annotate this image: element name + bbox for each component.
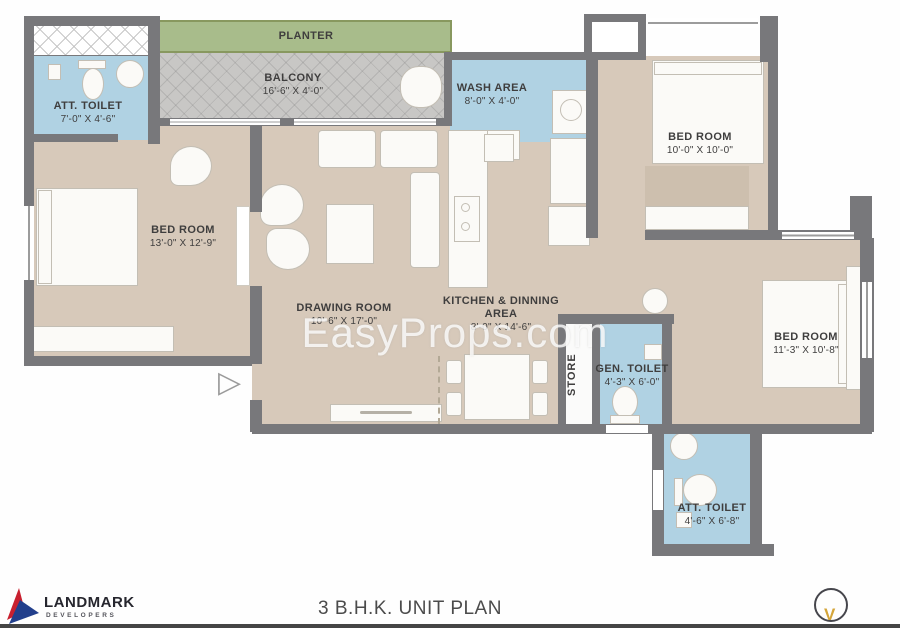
wall-bedroom-left-right-lower — [250, 286, 262, 364]
balcony-name: BALCONY — [222, 72, 364, 85]
dining-chair-2 — [446, 392, 462, 416]
att-toilet-2-name: ATT. TOILET — [650, 502, 774, 515]
tv-screen — [360, 411, 412, 414]
wall-left-outer — [24, 16, 34, 366]
window-balcony-2 — [294, 119, 436, 125]
att-toilet-1-name: ATT. TOILET — [26, 100, 150, 113]
label-wash-area: WASH AREA 8'-0" X 4'-0" — [430, 82, 554, 108]
wall-store-left — [558, 322, 566, 426]
logo-name-text: LANDMARK — [44, 595, 135, 611]
bedroom-right-name: BED ROOM — [724, 331, 888, 344]
kitchen-dining-name-2: AREA — [421, 308, 581, 321]
dining-chair-1 — [446, 360, 462, 384]
drawing-room-name: DRAWING ROOM — [262, 302, 426, 315]
chair-bedroom-left — [170, 146, 212, 186]
passage-washbasin — [642, 288, 668, 314]
wash-area-dim: 8'-0" X 4'-0" — [430, 95, 554, 108]
tub-chair-b — [266, 228, 310, 270]
floor-plan-canvas: ▷ PLANTER BALCONY 16'-6" X 4'-0" WASH AR… — [0, 0, 900, 628]
tub-chair-a — [260, 184, 304, 226]
window-bedroom-right-top — [782, 232, 854, 239]
wash-area-name: WASH AREA — [430, 82, 554, 95]
gen-toilet-dim: 4'-3" X 6'-0" — [584, 376, 680, 389]
drawing-room-dim: 10'-6" X 17'-0" — [262, 315, 426, 328]
label-bedroom-left: BED ROOM 13'-0" X 12'-9" — [101, 224, 265, 250]
bedroom-right-dim: 11'-3" X 10'-8" — [724, 344, 888, 357]
bedroom-top-right-name: BED ROOM — [618, 131, 782, 144]
sofa-seat-a — [318, 130, 376, 168]
label-planter: PLANTER — [160, 30, 452, 43]
wall-wash-top — [450, 52, 590, 60]
wall-tr-bedroom-bottom — [645, 230, 778, 240]
wall-bedroom-left-right-upper — [250, 120, 262, 212]
entry-arrow-icon: ▷ — [218, 368, 241, 398]
bench-bedroom-top-right — [645, 206, 749, 230]
kitchen-fridge — [548, 206, 590, 246]
dining-divider-dashed — [438, 356, 440, 424]
bottom-border-line — [0, 624, 900, 628]
att-toilet-2-dim: 4'-6" X 6'-8" — [650, 515, 774, 528]
compass-direction-glyph: V — [824, 605, 835, 625]
wc-bowl-att-toilet-1 — [82, 68, 104, 100]
wardrobe-bedroom-top-right — [645, 166, 749, 206]
logo-pinwheel-icon — [6, 587, 40, 628]
dining-chair-4 — [532, 392, 548, 416]
att-toilet-1-dim: 7'-0" X 4'-6" — [26, 113, 150, 126]
label-balcony: BALCONY 16'-6" X 4'-0" — [222, 72, 364, 98]
label-kitchen-dining: KITCHEN & DINNING AREA 8'-0" X 14'-6" — [421, 295, 581, 334]
dining-chair-3 — [532, 360, 548, 384]
basin-att-toilet-1 — [116, 60, 144, 88]
wall-bedroom-left-bottom — [24, 356, 252, 366]
washing-machine-drum — [560, 99, 582, 121]
logo-subtitle-text: DEVELOPERS — [46, 611, 116, 620]
wardrobe-left — [32, 326, 174, 352]
bedroom-left-name: BED ROOM — [101, 224, 265, 237]
bedroom-top-right-dim: 10'-0" X 10'-0" — [618, 144, 782, 157]
plan-title: 3 B.H.K. UNIT PLAN — [130, 598, 690, 620]
sofa-side-unit — [410, 172, 440, 268]
hob-burner-1 — [461, 203, 470, 212]
label-bedroom-right: BED ROOM 11'-3" X 10'-8" — [724, 331, 888, 357]
bed-top-right-pillow — [654, 62, 762, 75]
kitchen-dining-name: KITCHEN & DINNING — [421, 295, 581, 308]
wall-top-left — [24, 16, 158, 26]
hob-burner-2 — [461, 222, 470, 231]
window-bedroom-top-right — [648, 18, 758, 28]
geyser-att-toilet-1 — [48, 64, 61, 80]
wc-tank-gen-toilet — [610, 415, 640, 424]
wall-att-toilet-2-right — [750, 430, 762, 556]
wall-toilet1-bottom — [24, 134, 118, 142]
coffee-table — [326, 204, 374, 264]
wall-kitchen-right — [586, 52, 598, 238]
balcony-dim: 16'-6" X 4'-0" — [222, 85, 364, 98]
basin-att-toilet-2 — [670, 432, 698, 460]
label-att-toilet-1: ATT. TOILET 7'-0" X 4'-6" — [26, 100, 150, 126]
bed-left-pillow — [38, 190, 52, 284]
label-drawing-room: DRAWING ROOM 10'-6" X 17'-0" — [262, 302, 426, 328]
label-att-toilet-2: ATT. TOILET 4'-6" X 6'-8" — [650, 502, 774, 528]
sofa-seat-b — [380, 130, 438, 168]
label-gen-toilet: GEN. TOILET 4'-3" X 6'-0" — [584, 363, 680, 389]
geyser-gen-toilet — [644, 344, 662, 360]
kitchen-dining-dim: 8'-0" X 14'-6" — [421, 321, 581, 334]
wc-bowl-gen-toilet — [612, 386, 638, 418]
gen-toilet-name: GEN. TOILET — [584, 363, 680, 376]
planter-name: PLANTER — [160, 30, 452, 43]
door-gen-toilet — [606, 425, 648, 433]
window-bedroom-left — [24, 206, 34, 280]
kitchen-sink — [484, 134, 514, 162]
dining-table — [464, 354, 530, 420]
label-bedroom-top-right: BED ROOM 10'-0" X 10'-0" — [618, 131, 782, 157]
window-balcony-1 — [170, 119, 280, 125]
bedroom-left-dim: 13'-0" X 12'-9" — [101, 237, 265, 250]
